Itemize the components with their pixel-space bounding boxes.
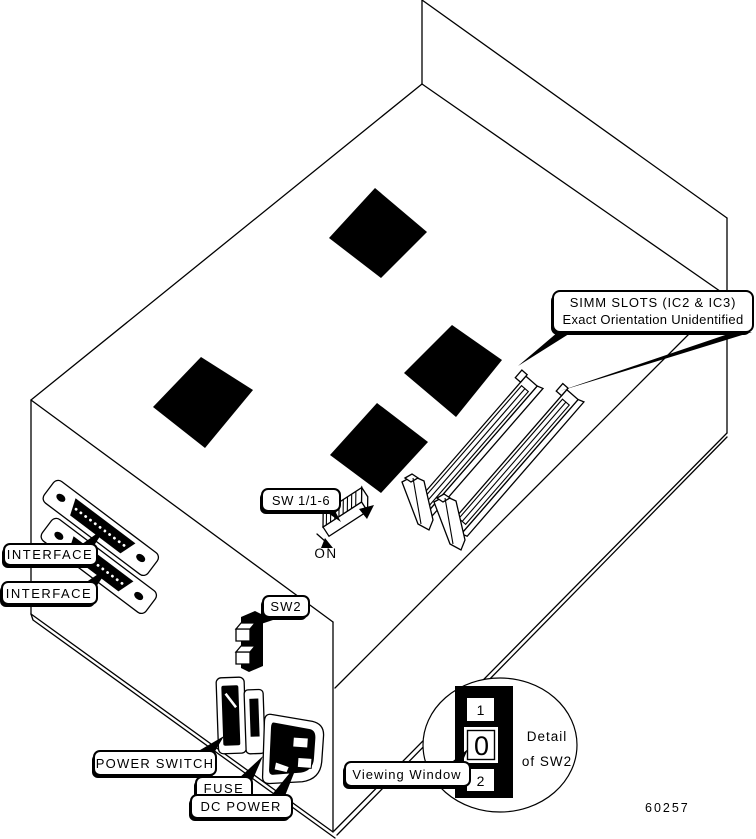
- simm-pointer-2: [560, 332, 752, 391]
- callout-sw2: SW2: [261, 596, 309, 620]
- simm-slots-label-line1: SIMM SLOTS (IC2 & IC3): [570, 295, 736, 310]
- position-1-digit: 1: [477, 702, 485, 718]
- dc-power-label: DC POWER: [200, 799, 281, 814]
- fuse-holder: [244, 689, 265, 754]
- figure-number: 60257: [645, 801, 690, 815]
- callout-simm-slots: SIMM SLOTS (IC2 & IC3) Exact Orientation…: [551, 291, 753, 335]
- ic-chips: [153, 188, 502, 493]
- callout-sw1: SW 1/1-6: [260, 489, 340, 514]
- simm-slots-label-line2: Exact Orientation Unidentified: [563, 312, 744, 327]
- position-2-digit: 2: [477, 773, 485, 789]
- callout-power-switch: POWER SWITCH: [92, 751, 216, 778]
- simm-slot-latch: [434, 494, 465, 550]
- callout-interface-bottom: INTERFACE: [0, 582, 97, 607]
- diagram-canvas: ON: [0, 0, 756, 839]
- fuse-label: FUSE: [204, 781, 245, 796]
- sw2-label: SW2: [270, 599, 301, 614]
- detail-caption-line1: Detail: [527, 729, 568, 744]
- position-0-digit: 0: [474, 731, 489, 761]
- interface-top-label: INTERFACE: [7, 547, 93, 562]
- callout-viewing-window: Viewing Window: [343, 762, 470, 789]
- callout-dc-power: DC POWER: [189, 795, 292, 821]
- ic-chip: [153, 357, 253, 448]
- power-switch-label: POWER SWITCH: [96, 756, 214, 771]
- interface-bottom-label: INTERFACE: [6, 586, 92, 601]
- power-rocker-switch: [216, 677, 247, 754]
- figure-rear-panel-diagram: ON: [0, 0, 756, 839]
- callout-interface-top: INTERFACE: [2, 544, 97, 568]
- sw2-detail-balloon: 1 0 2 Detail of SW2: [423, 678, 577, 812]
- simm-pointer-1: [518, 332, 572, 366]
- viewing-window-label: Viewing Window: [352, 767, 461, 782]
- on-label: ON: [314, 546, 337, 561]
- simm-slot-latch: [402, 474, 433, 530]
- ic-chip: [404, 325, 502, 417]
- detail-caption-line2: of SW2: [522, 754, 572, 769]
- toggle-switch-sw2: [236, 611, 263, 672]
- sw1-label: SW 1/1-6: [272, 493, 330, 508]
- ic-chip: [329, 188, 427, 278]
